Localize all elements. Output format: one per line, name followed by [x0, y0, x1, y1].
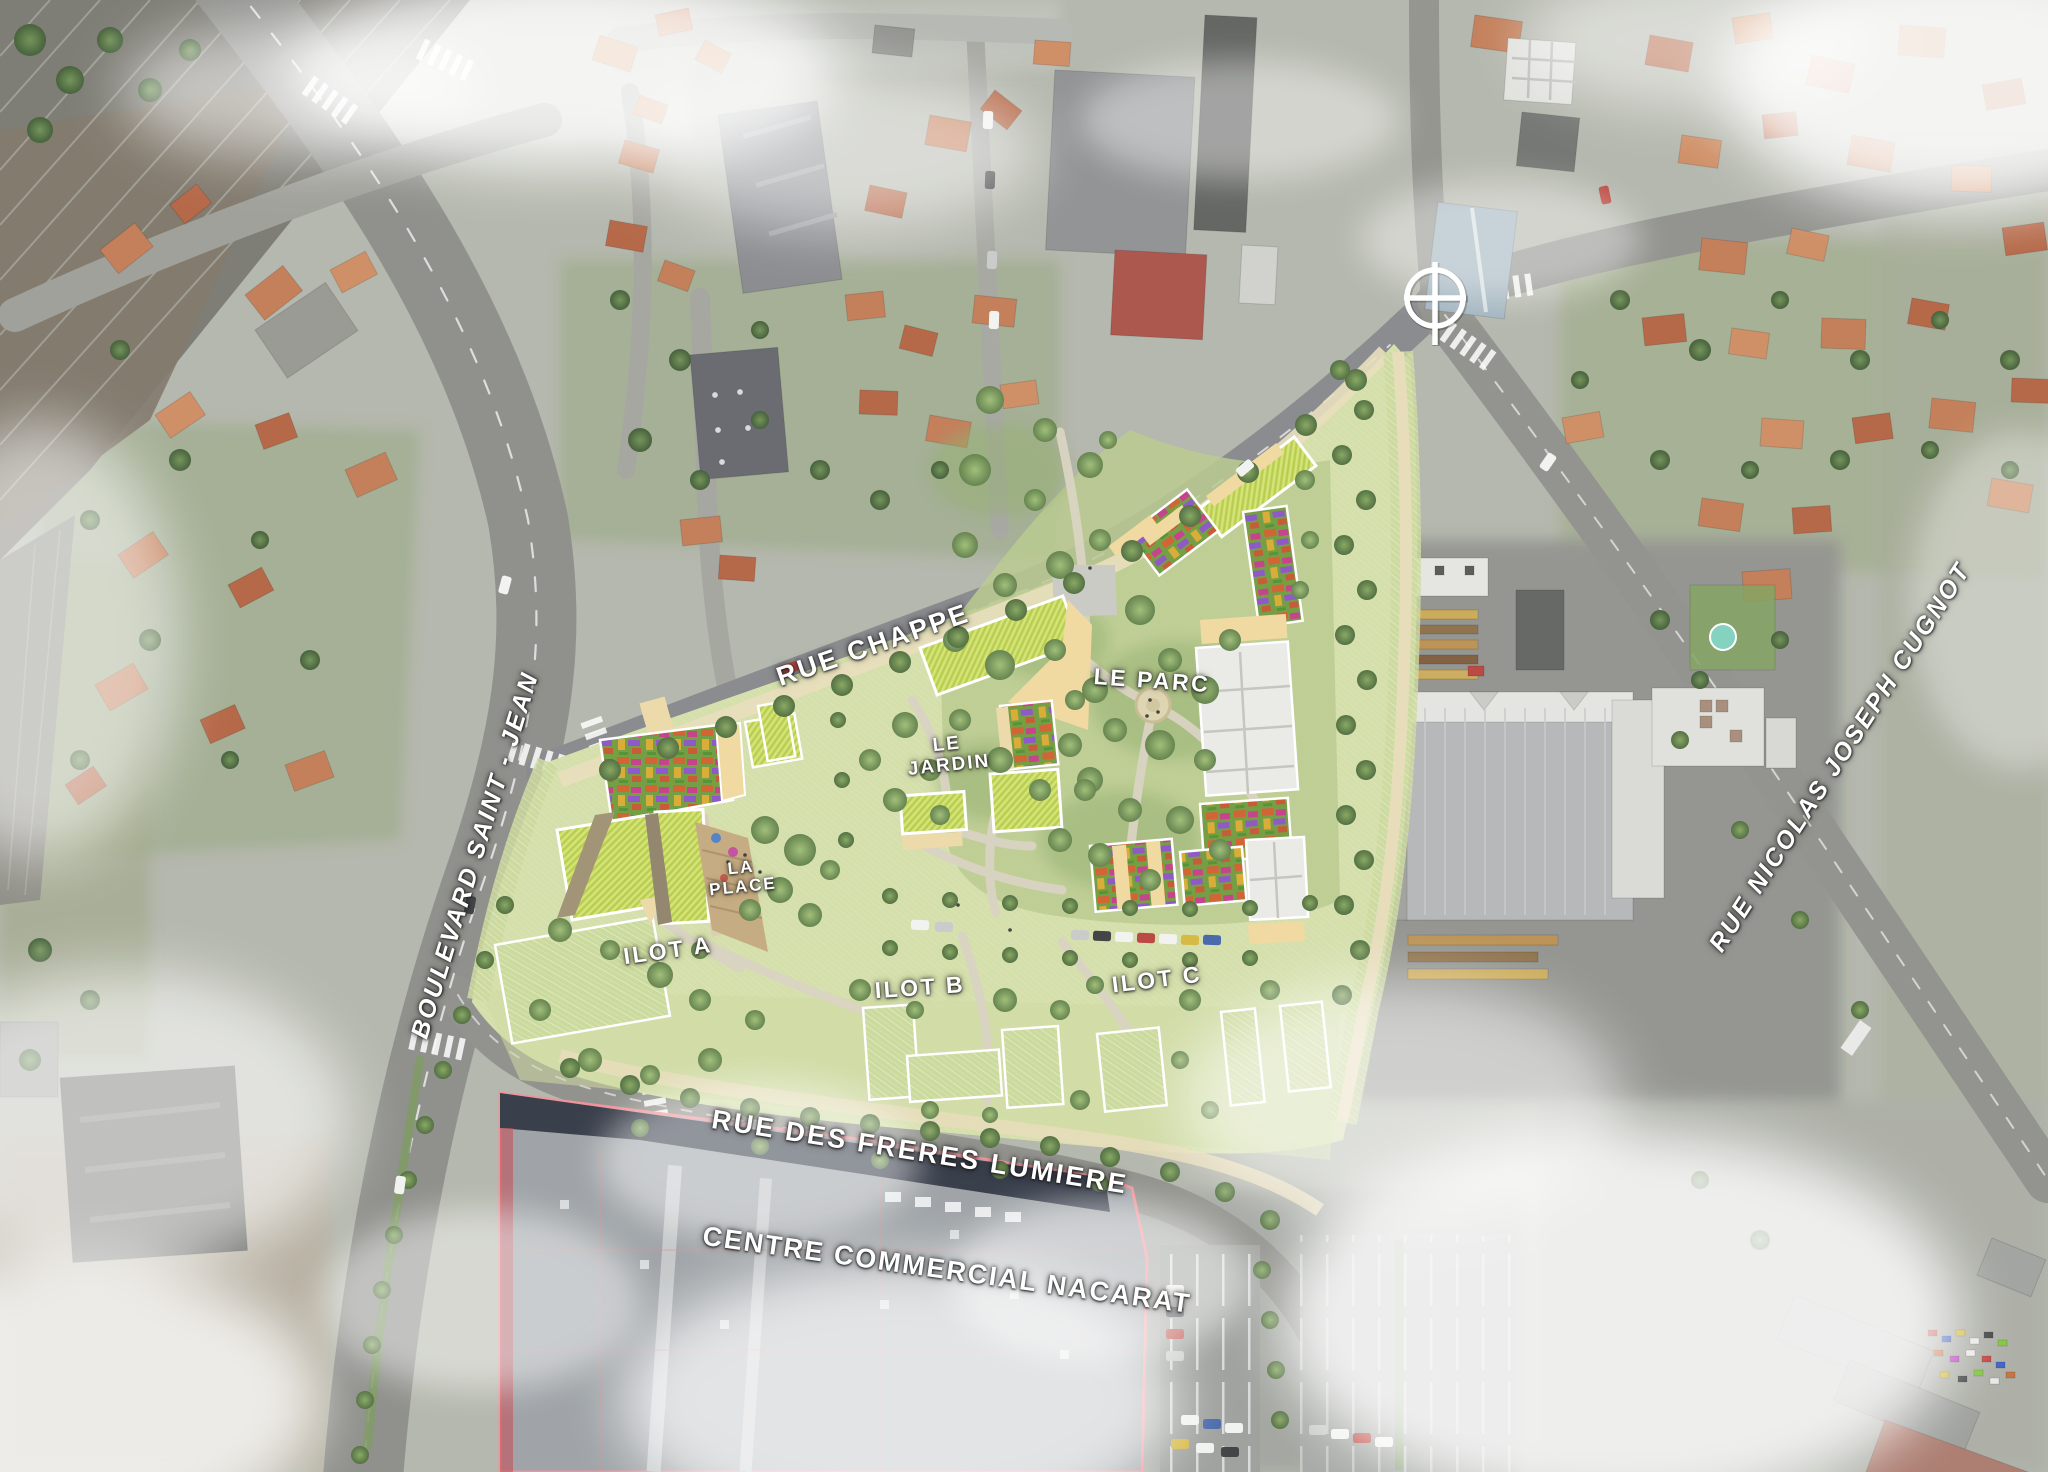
place-label-la-place: LA PLACE	[706, 855, 777, 900]
place-label-le-jardin: LE JARDIN	[905, 730, 992, 781]
map-canvas[interactable]: RUE CHAPPE BOULEVARD SAINT - JEAN RUE DE…	[0, 0, 2048, 1472]
aerial-map-art	[0, 0, 2048, 1472]
clouds	[0, 0, 2048, 1472]
